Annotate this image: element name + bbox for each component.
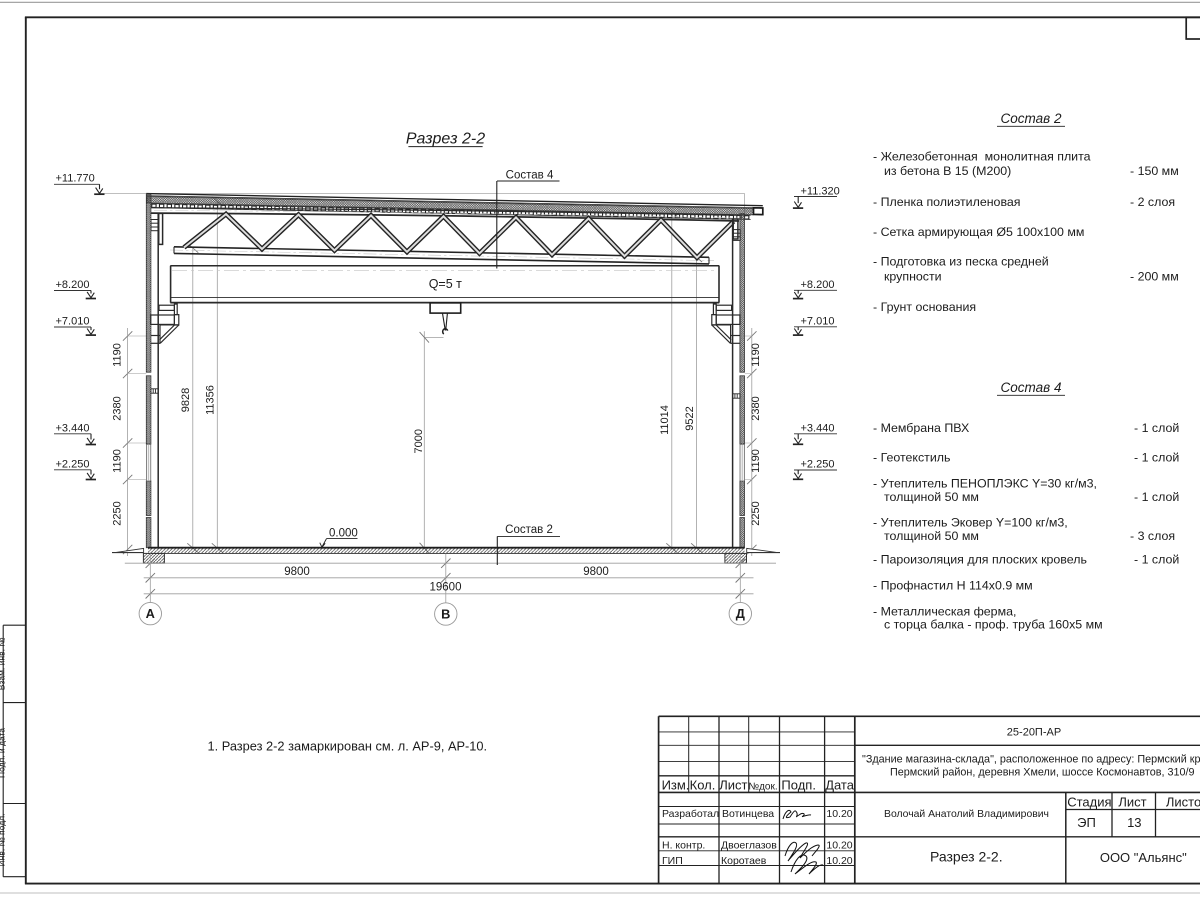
svg-text:- Металлическая ферма,: - Металлическая ферма,	[873, 605, 1016, 619]
svg-text:№док.: №док.	[748, 782, 777, 793]
svg-text:+7.010: +7.010	[56, 316, 90, 328]
svg-text:2380: 2380	[111, 396, 123, 420]
svg-text:11356: 11356	[205, 385, 217, 415]
svg-text:+2.250: +2.250	[801, 458, 835, 470]
svg-text:7000: 7000	[413, 429, 425, 453]
svg-text:9800: 9800	[284, 566, 310, 578]
svg-text:+3.440: +3.440	[801, 422, 835, 434]
svg-text:Состав 4: Состав 4	[1001, 380, 1062, 395]
svg-text:1190: 1190	[750, 449, 762, 473]
svg-text:Инв. № подл.: Инв. № подл.	[0, 814, 7, 867]
svg-text:9828: 9828	[180, 388, 192, 412]
svg-text:11014: 11014	[659, 405, 671, 435]
svg-text:+8.200: +8.200	[801, 279, 835, 291]
svg-text:- 1 слой: - 1 слой	[1134, 451, 1179, 465]
svg-text:2250: 2250	[111, 501, 123, 525]
svg-text:9522: 9522	[684, 406, 696, 430]
svg-text:ЭП: ЭП	[1077, 815, 1096, 830]
svg-text:- 150 мм: - 150 мм	[1130, 164, 1179, 178]
svg-text:- Подготовка из песка средней: - Подготовка из песка средней	[873, 255, 1049, 269]
svg-text:- Грунт основания: - Грунт основания	[873, 300, 976, 314]
svg-text:Вотинцева: Вотинцева	[722, 808, 774, 820]
svg-text:Изм.: Изм.	[662, 777, 690, 792]
svg-text:+3.440: +3.440	[56, 422, 90, 434]
svg-text:25-20П-АР: 25-20П-АР	[1007, 727, 1061, 739]
svg-text:10.20: 10.20	[826, 855, 852, 867]
svg-text:- Профнастил Н 114х0.9 мм: - Профнастил Н 114х0.9 мм	[873, 579, 1033, 593]
svg-text:1190: 1190	[750, 343, 762, 367]
svg-text:+7.010: +7.010	[801, 316, 835, 328]
svg-text:В: В	[441, 607, 450, 622]
svg-text:- Пароизоляция для плоских кро: - Пароизоляция для плоских кровель	[873, 553, 1087, 567]
svg-text:толщиной 50 мм: толщиной 50 мм	[884, 529, 979, 543]
svg-text:+11.320: +11.320	[801, 185, 840, 197]
svg-text:Q=5 т: Q=5 т	[429, 277, 462, 291]
svg-text:1190: 1190	[111, 343, 123, 367]
svg-text:Лист: Лист	[719, 777, 747, 792]
svg-text:из бетона В 15 (М200): из бетона В 15 (М200)	[884, 164, 1011, 178]
svg-text:Коротаев: Коротаев	[721, 855, 767, 867]
svg-text:Д: Д	[736, 606, 745, 621]
svg-text:- Железобетонная монолитная п: - Железобетонная монолитная плита	[873, 150, 1091, 164]
svg-text:2380: 2380	[750, 396, 762, 420]
svg-text:Кол.: Кол.	[690, 777, 716, 792]
svg-text:Разрез 2-2.: Разрез 2-2.	[930, 848, 1003, 864]
svg-text:1190: 1190	[111, 449, 123, 473]
svg-text:10.20: 10.20	[826, 808, 852, 820]
svg-text:Взам. инв. №: Взам. инв. №	[0, 638, 7, 691]
svg-text:+8.200: +8.200	[56, 279, 90, 291]
svg-text:Двоеглазов: Двоеглазов	[721, 839, 777, 851]
svg-text:Состав 4: Состав 4	[506, 170, 554, 182]
svg-text:- Мембрана ПВХ: - Мембрана ПВХ	[873, 421, 969, 435]
svg-text:- 1 слой: - 1 слой	[1134, 490, 1179, 504]
svg-text:А: А	[146, 606, 155, 621]
svg-text:Разрез 2-2: Разрез 2-2	[406, 131, 485, 148]
svg-text:ООО "Альянс": ООО "Альянс"	[1100, 850, 1187, 865]
svg-text:Волочай Анатолий Владимирович: Волочай Анатолий Владимирович	[884, 809, 1049, 820]
svg-text:9800: 9800	[583, 566, 609, 578]
svg-text:с торца балка - проф. труба 16: с торца балка - проф. труба 160х5 мм	[884, 618, 1103, 632]
svg-text:- Утеплитель ПЕНОПЛЭКС Y=30 кг: - Утеплитель ПЕНОПЛЭКС Y=30 кг/м3,	[873, 477, 1097, 491]
svg-text:крупности: крупности	[884, 270, 942, 284]
svg-text:+2.250: +2.250	[56, 458, 90, 470]
svg-text:Н. контр.: Н. контр.	[662, 839, 705, 851]
svg-text:Разработал: Разработал	[662, 808, 719, 820]
svg-text:Дата: Дата	[825, 777, 855, 792]
svg-text:- Пленка полиэтиленовая: - Пленка полиэтиленовая	[873, 195, 1021, 209]
svg-text:Состав 2: Состав 2	[505, 524, 553, 536]
svg-text:Стадия: Стадия	[1067, 795, 1111, 810]
svg-text:2250: 2250	[750, 501, 762, 525]
svg-text:1. Разрез 2-2 замаркирован см.: 1. Разрез 2-2 замаркирован см. л. АР-9, …	[208, 739, 488, 754]
svg-text:- Геотекстиль: - Геотекстиль	[873, 451, 950, 465]
svg-text:Лист: Лист	[1118, 795, 1146, 810]
svg-text:- 1 слой: - 1 слой	[1134, 421, 1179, 435]
svg-text:Подп. и дата: Подп. и дата	[0, 728, 7, 778]
svg-text:- 200 мм: - 200 мм	[1130, 270, 1179, 284]
svg-text:толщиной 50 мм: толщиной 50 мм	[884, 490, 979, 504]
svg-text:- 2 слоя: - 2 слоя	[1130, 195, 1175, 209]
svg-text:Пермский район, деревня Хмели,: Пермский район, деревня Хмели, шоссе Кос…	[890, 766, 1194, 778]
svg-text:Подп.: Подп.	[781, 777, 816, 792]
svg-text:+11.770: +11.770	[56, 173, 95, 185]
svg-text:"Здание магазина-склада", расп: "Здание магазина-склада", расположенное …	[862, 754, 1200, 766]
svg-text:- Утеплитель Эковер Y=100 кг/м: - Утеплитель Эковер Y=100 кг/м3,	[873, 516, 1068, 530]
svg-text:Состав 2: Состав 2	[1001, 111, 1062, 126]
svg-text:13: 13	[1127, 815, 1141, 830]
svg-text:- 1 слой: - 1 слой	[1134, 553, 1179, 567]
svg-text:19600: 19600	[430, 582, 462, 594]
svg-text:10.20: 10.20	[826, 839, 852, 851]
svg-text:ГИП: ГИП	[662, 855, 683, 867]
svg-text:0.000: 0.000	[329, 527, 358, 539]
svg-text:- Сетка армирующая Ø5 100х100: - Сетка армирующая Ø5 100х100 мм	[873, 225, 1084, 239]
svg-text:Листов: Листов	[1166, 795, 1200, 810]
svg-text:- 3 слоя: - 3 слоя	[1130, 529, 1175, 543]
